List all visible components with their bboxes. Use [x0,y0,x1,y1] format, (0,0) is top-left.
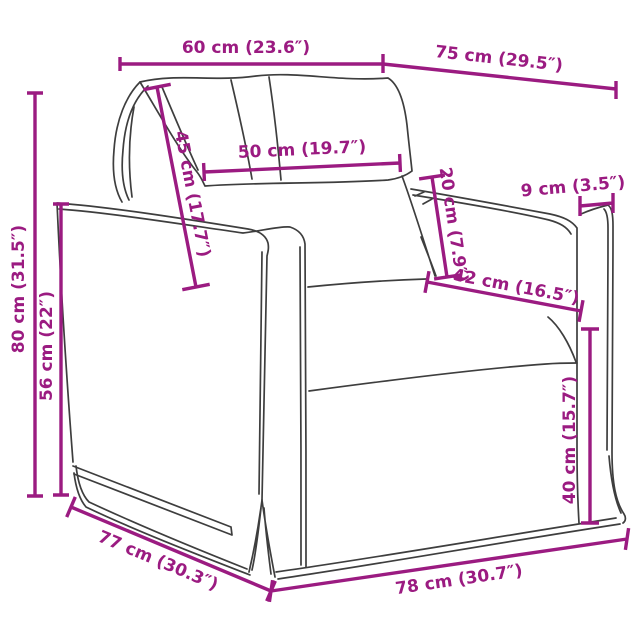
skirt-side-band [73,466,232,535]
dim-seat-height-line [581,329,599,523]
label-back-width: 60 cm (23.6″) [182,38,310,58]
dim-top-depth-line [383,64,616,99]
dimension-annotations [27,54,629,602]
label-armrest-height: 56 cm (22″) [37,291,57,401]
back-frame-left-edge [113,82,148,202]
label-total-height: 80 cm (31.5″) [9,225,29,353]
label-seat-height: 40 cm (15.7″) [560,376,580,504]
label-seat-depth: 42 cm (16.5″) [451,265,581,308]
dimension-diagram: 60 cm (23.6″) 75 cm (29.5″) 45 cm (17.7″… [0,0,640,640]
dim-top-depth [383,64,616,99]
label-armrest-width: 9 cm (3.5″) [520,172,626,201]
label-base-width: 78 cm (30.7″) [394,561,524,599]
left-armrest [57,203,306,567]
right-armrest [411,189,625,523]
label-back-cushion-width: 50 cm (19.7″) [237,137,366,163]
corner-pleat [249,500,275,577]
diagram-canvas: 60 cm (23.6″) 75 cm (29.5″) 45 cm (17.7″… [0,0,640,640]
dim-seat-height [581,329,599,523]
